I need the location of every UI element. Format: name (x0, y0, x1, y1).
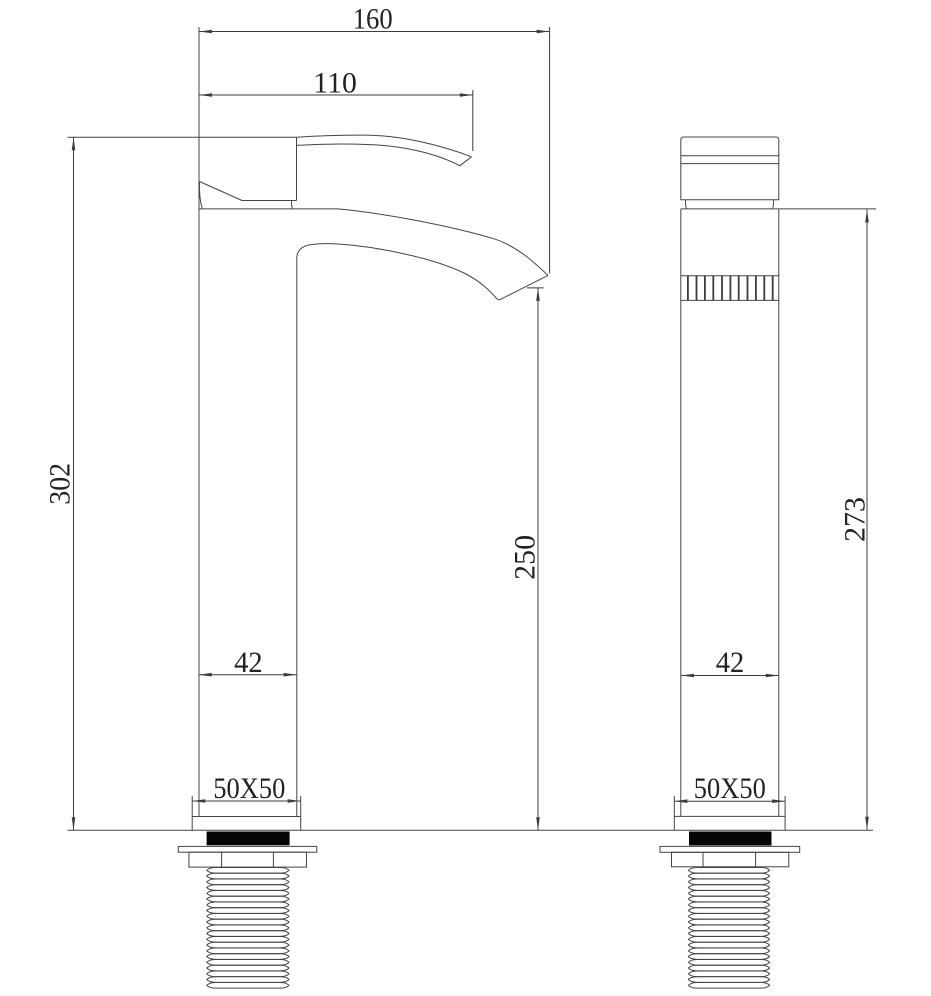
svg-text:42: 42 (234, 646, 263, 679)
svg-text:110: 110 (313, 67, 357, 100)
svg-text:302: 302 (44, 463, 77, 505)
svg-text:250: 250 (509, 535, 542, 580)
svg-text:273: 273 (839, 497, 872, 542)
svg-text:160: 160 (353, 3, 393, 36)
svg-text:50X50: 50X50 (213, 772, 285, 805)
svg-text:50X50: 50X50 (694, 772, 766, 805)
svg-text:42: 42 (716, 646, 745, 679)
